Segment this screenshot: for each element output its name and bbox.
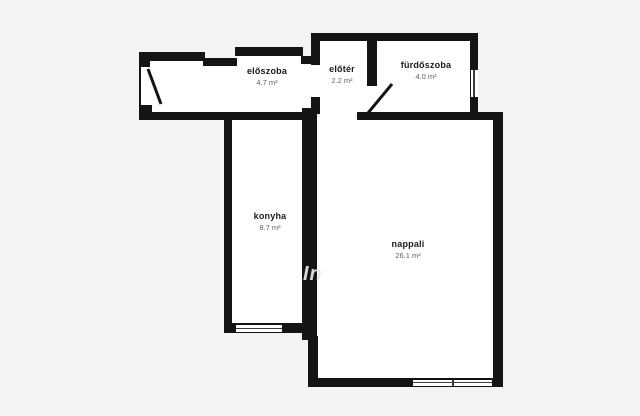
label-konyha: konyha 8.7 m² <box>254 211 287 233</box>
room-area-konyha: 8.7 m² <box>254 223 287 232</box>
room-name-konyha: konyha <box>254 211 287 222</box>
room-name-furdoszoba: fürdőszoba <box>401 60 452 71</box>
room-name-eloszoba: előszoba <box>247 66 287 77</box>
door-swing-lines <box>0 0 640 416</box>
room-area-furdoszoba: 4.0 m² <box>401 72 452 81</box>
floorplan-canvas: előszoba 4.7 m² előtér 2.2 m² fürdőszoba… <box>0 0 640 416</box>
room-area-nappali: 26.1 m² <box>392 251 425 260</box>
room-area-eloszoba: 4.7 m² <box>247 78 287 87</box>
label-eloszoba: előszoba 4.7 m² <box>247 66 287 88</box>
room-name-nappali: nappali <box>392 239 425 250</box>
room-area-eloter: 2.2 m² <box>329 76 355 85</box>
label-furdoszoba: fürdőszoba 4.0 m² <box>401 60 452 82</box>
watermark-text: In <box>303 263 323 286</box>
label-eloter: előtér 2.2 m² <box>329 64 355 86</box>
entry-door-leaf <box>148 69 161 104</box>
label-nappali: nappali 26.1 m² <box>392 239 425 261</box>
room-name-eloter: előtér <box>329 64 355 75</box>
furdo-door-leaf <box>368 84 392 113</box>
